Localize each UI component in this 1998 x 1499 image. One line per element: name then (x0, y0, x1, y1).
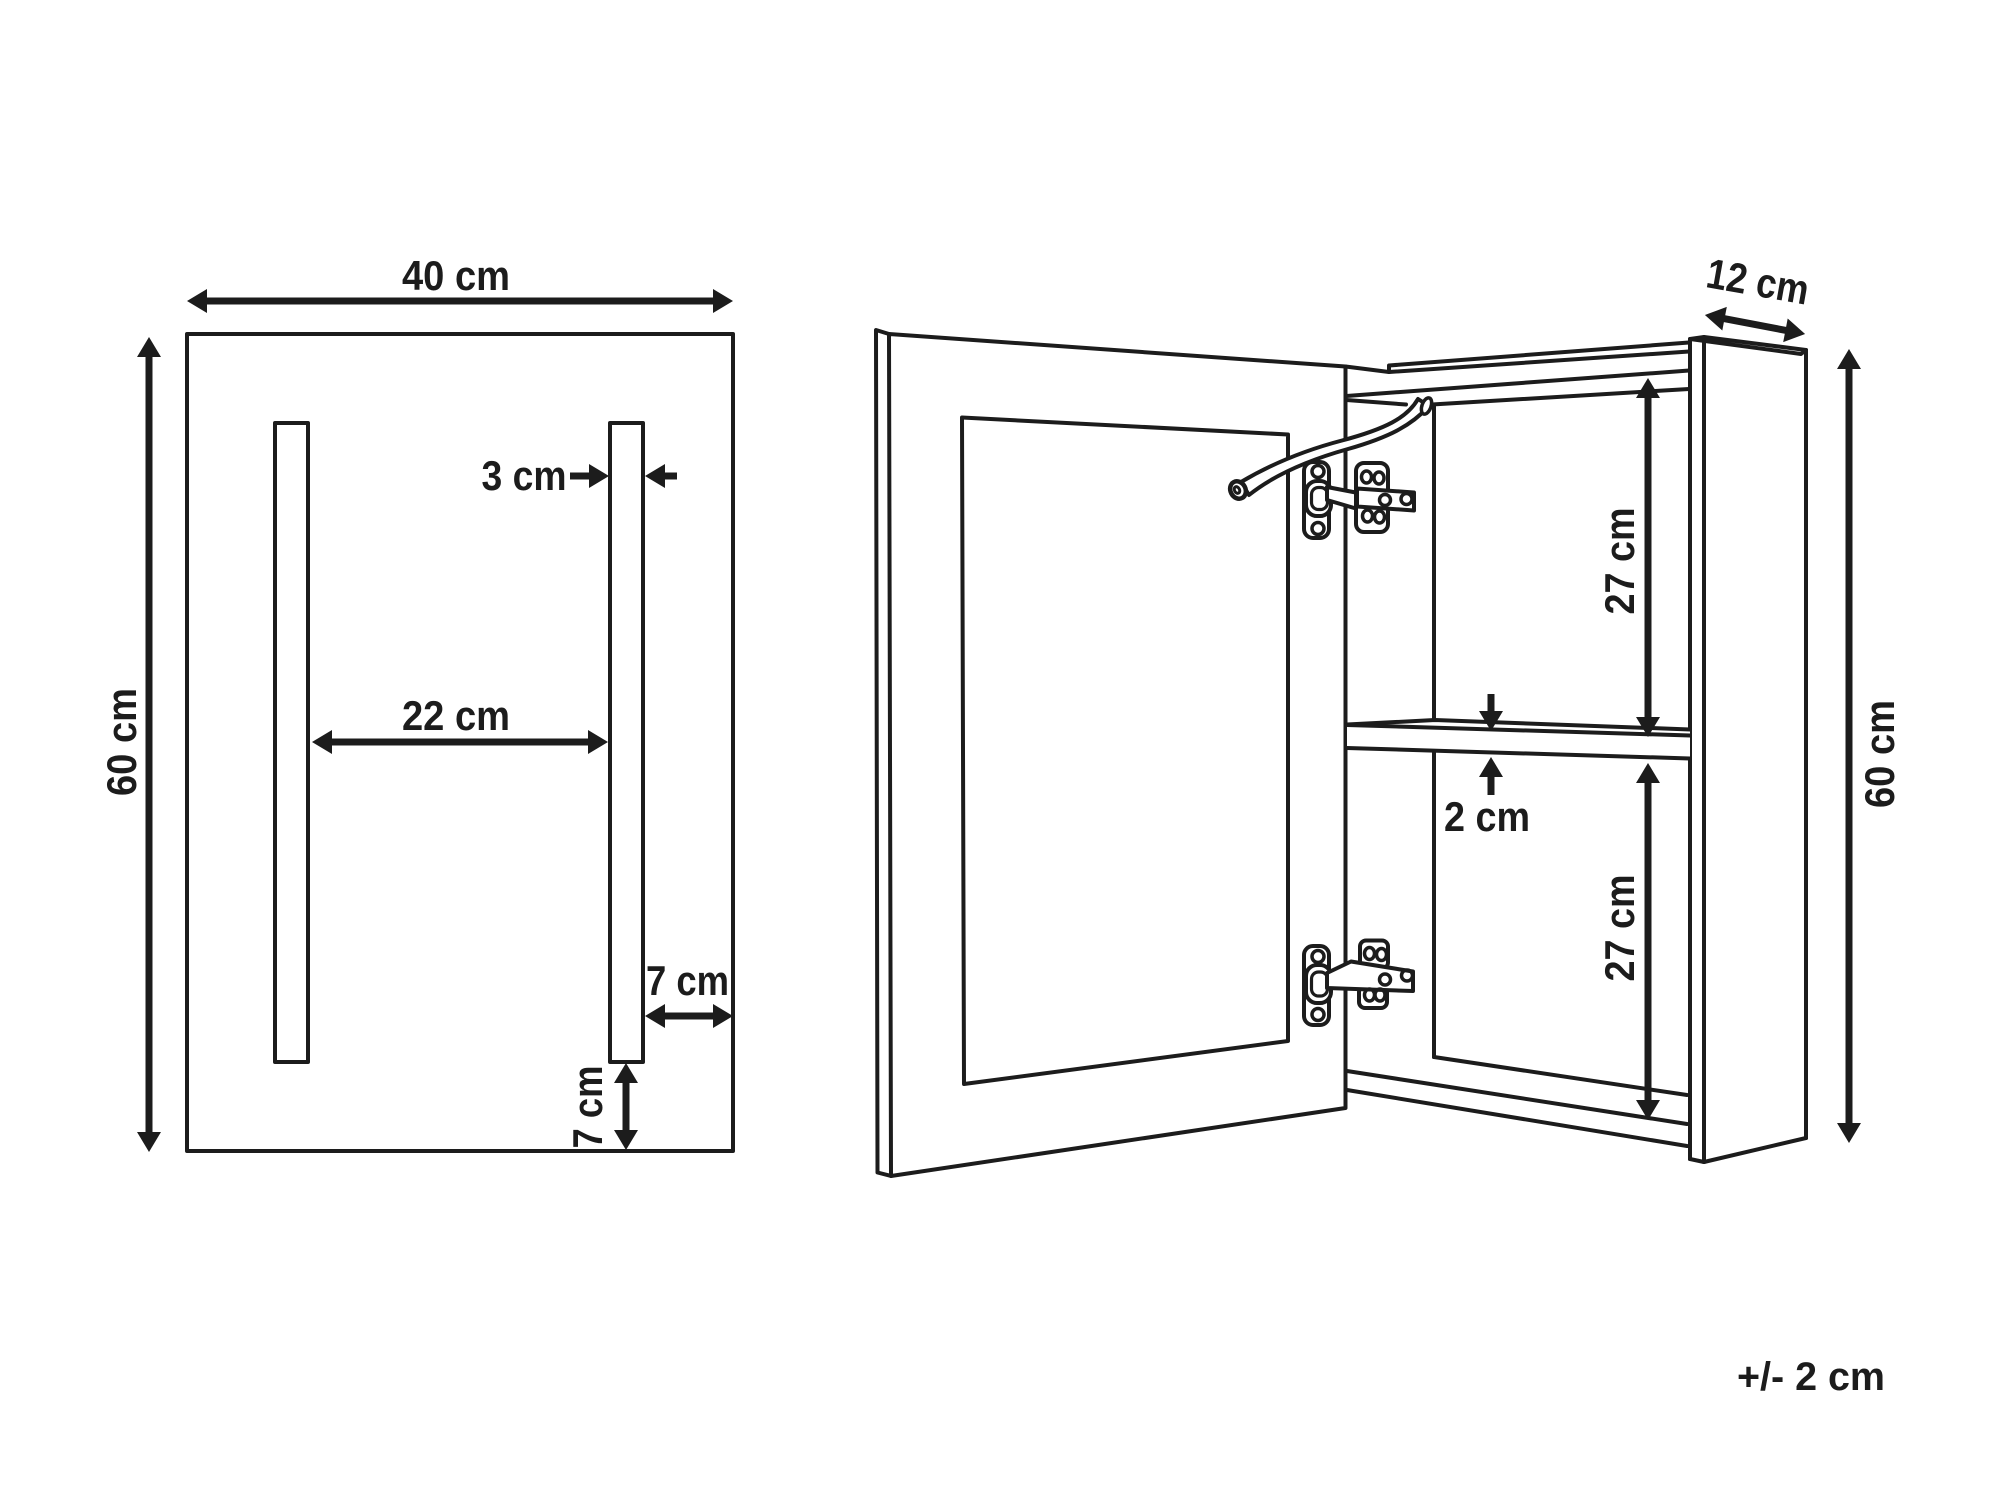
svg-text:7 cm: 7 cm (564, 1066, 611, 1149)
svg-text:60 cm: 60 cm (98, 688, 145, 796)
svg-text:7 cm: 7 cm (646, 957, 729, 1004)
svg-text:60 cm: 60 cm (1856, 700, 1903, 808)
svg-text:3 cm: 3 cm (482, 452, 567, 499)
svg-text:22 cm: 22 cm (402, 692, 510, 739)
svg-text:40 cm: 40 cm (402, 252, 510, 299)
svg-text:27 cm: 27 cm (1596, 875, 1643, 982)
svg-text:2 cm: 2 cm (1444, 793, 1530, 840)
svg-text:27 cm: 27 cm (1596, 508, 1643, 615)
svg-text:+/- 2 cm: +/- 2 cm (1737, 1355, 1885, 1399)
